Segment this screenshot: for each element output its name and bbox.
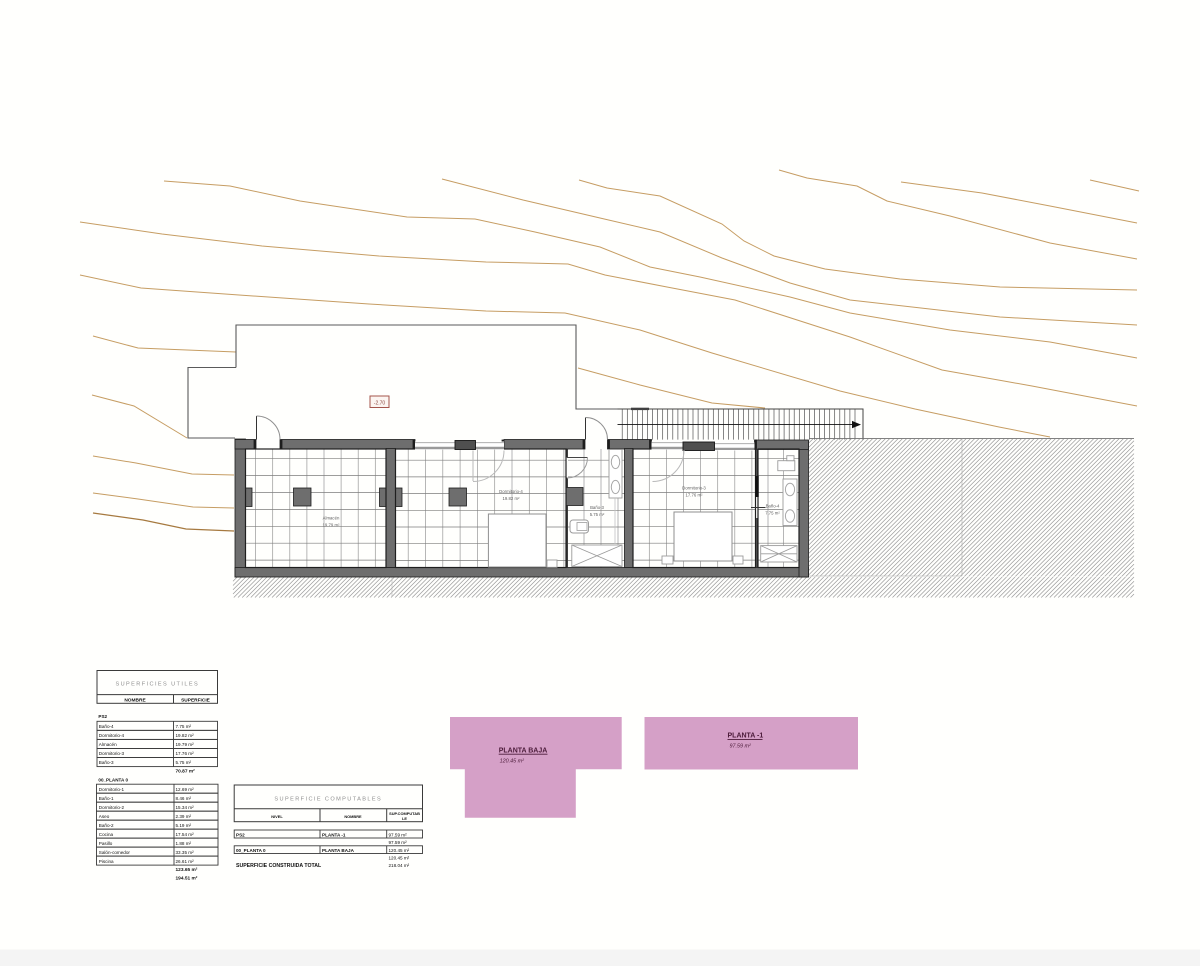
svg-text:SUPERFICIES UTILES: SUPERFICIES UTILES <box>115 682 199 688</box>
svg-text:Aseo: Aseo <box>99 814 110 819</box>
svg-text:8.46 m²: 8.46 m² <box>176 796 192 801</box>
svg-text:PS2: PS2 <box>236 832 245 837</box>
svg-text:15.34 m²: 15.34 m² <box>176 805 195 810</box>
svg-text:Baño-4: Baño-4 <box>99 724 114 729</box>
svg-text:26.61 m²: 26.61 m² <box>176 859 195 864</box>
svg-text:5.19 m²: 5.19 m² <box>176 823 192 828</box>
svg-text:SUPERFICIE: SUPERFICIE <box>181 698 211 704</box>
svg-text:97.59 m²: 97.59 m² <box>389 832 408 837</box>
svg-text:Piscina: Piscina <box>99 859 114 864</box>
svg-text:00_PLANTA 0: 00_PLANTA 0 <box>236 848 266 853</box>
svg-text:PLANTA -1: PLANTA -1 <box>322 832 346 837</box>
svg-text:-2.70: -2.70 <box>374 400 386 406</box>
svg-text:Baño-2: Baño-2 <box>99 823 114 828</box>
svg-text:17.76 m²: 17.76 m² <box>686 493 704 498</box>
svg-text:Cocina: Cocina <box>99 832 114 837</box>
svg-text:PLANTA BAJA: PLANTA BAJA <box>322 848 355 853</box>
svg-text:1.88 m²: 1.88 m² <box>176 841 192 846</box>
svg-text:Dormitorio-2: Dormitorio-2 <box>99 805 125 810</box>
svg-text:123.65 m²: 123.65 m² <box>176 867 198 873</box>
svg-text:7.75 m²: 7.75 m² <box>176 724 192 729</box>
svg-text:Baño-3: Baño-3 <box>99 760 114 765</box>
svg-text:19.82 m²: 19.82 m² <box>503 496 521 501</box>
svg-text:Almacén: Almacén <box>323 516 340 521</box>
svg-text:97.59 m²: 97.59 m² <box>389 840 408 845</box>
svg-text:Dormitorio-4: Dormitorio-4 <box>499 489 523 494</box>
svg-text:00_PLANTA 0: 00_PLANTA 0 <box>98 778 128 783</box>
svg-text:12.69 m²: 12.69 m² <box>176 787 195 792</box>
svg-text:Dormitorio-1: Dormitorio-1 <box>99 787 125 792</box>
svg-text:PS2: PS2 <box>98 714 107 719</box>
svg-text:2.39 m²: 2.39 m² <box>176 814 192 819</box>
svg-text:97.59 m²: 97.59 m² <box>730 744 751 750</box>
svg-text:Baño-3: Baño-3 <box>590 505 604 510</box>
svg-text:33.35 m²: 33.35 m² <box>176 850 195 855</box>
svg-text:Baño-1: Baño-1 <box>99 796 114 801</box>
svg-text:Dormitorio-3: Dormitorio-3 <box>682 486 706 491</box>
svg-text:Dormitorio-3: Dormitorio-3 <box>99 751 125 756</box>
svg-text:5.75 m²: 5.75 m² <box>176 760 192 765</box>
svg-text:7.75 m²: 7.75 m² <box>765 511 780 516</box>
svg-text:17.76 m²: 17.76 m² <box>176 751 195 756</box>
svg-text:Pasillo: Pasillo <box>99 841 113 846</box>
svg-text:NIVEL: NIVEL <box>271 814 283 819</box>
svg-text:PLANTA -1: PLANTA -1 <box>728 733 764 740</box>
svg-text:LE: LE <box>402 816 407 821</box>
svg-text:19.82 m²: 19.82 m² <box>176 733 195 738</box>
svg-text:Salón-comedor: Salón-comedor <box>99 850 131 855</box>
svg-text:120.45 m²: 120.45 m² <box>500 759 524 765</box>
svg-text:SUPERFICIE CONSTRUIDA TOTAL: SUPERFICIE CONSTRUIDA TOTAL <box>236 863 322 869</box>
svg-text:19.79 m²: 19.79 m² <box>176 742 195 747</box>
svg-text:PLANTA BAJA: PLANTA BAJA <box>499 748 548 755</box>
svg-text:70.87 m²: 70.87 m² <box>176 768 196 774</box>
svg-text:19.79 m²: 19.79 m² <box>323 523 341 528</box>
svg-text:NOMBRE: NOMBRE <box>124 698 146 704</box>
svg-text:17.54 m²: 17.54 m² <box>176 832 195 837</box>
svg-text:5.75 m²: 5.75 m² <box>590 512 605 517</box>
svg-text:SUPERFICIE COMPUTABLES: SUPERFICIE COMPUTABLES <box>274 797 382 803</box>
svg-text:NOMBRE: NOMBRE <box>344 814 362 819</box>
svg-text:194.51 m²: 194.51 m² <box>176 875 198 881</box>
svg-text:218.04 m²: 218.04 m² <box>389 863 410 868</box>
svg-text:120.45 m²: 120.45 m² <box>389 848 410 853</box>
svg-text:120.45 m²: 120.45 m² <box>389 856 410 861</box>
svg-text:Almacén: Almacén <box>99 742 117 747</box>
svg-text:Baño-4: Baño-4 <box>766 504 780 509</box>
svg-text:Dormitorio-4: Dormitorio-4 <box>99 733 125 738</box>
